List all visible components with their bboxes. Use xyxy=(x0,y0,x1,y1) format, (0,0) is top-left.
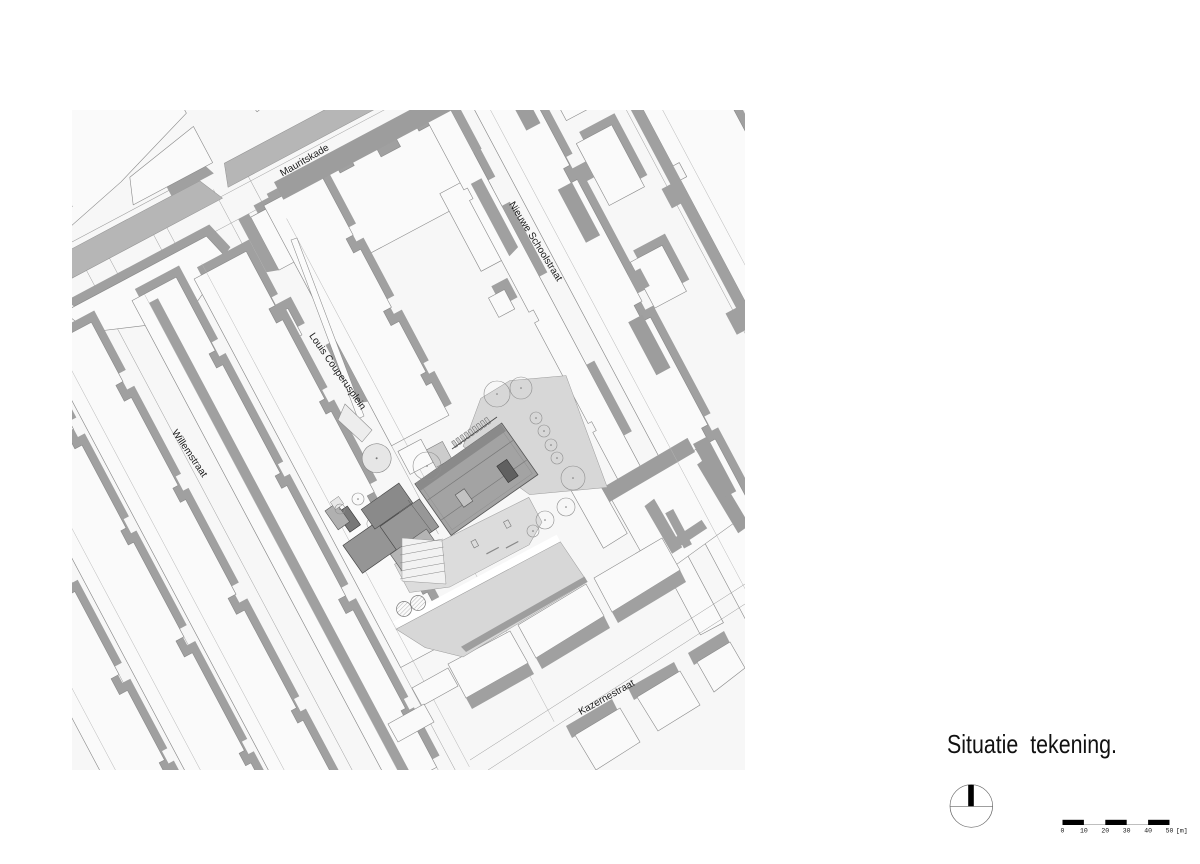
svg-text:20: 20 xyxy=(1101,828,1109,835)
svg-text:10: 10 xyxy=(1080,828,1088,835)
svg-text:[m]: [m] xyxy=(1176,828,1188,835)
svg-text:0: 0 xyxy=(1061,828,1065,835)
svg-text:40: 40 xyxy=(1144,828,1152,835)
svg-text:50: 50 xyxy=(1166,828,1174,835)
svg-text:Situatie tekening.: Situatie tekening. xyxy=(947,729,1117,759)
svg-text:30: 30 xyxy=(1123,828,1131,835)
